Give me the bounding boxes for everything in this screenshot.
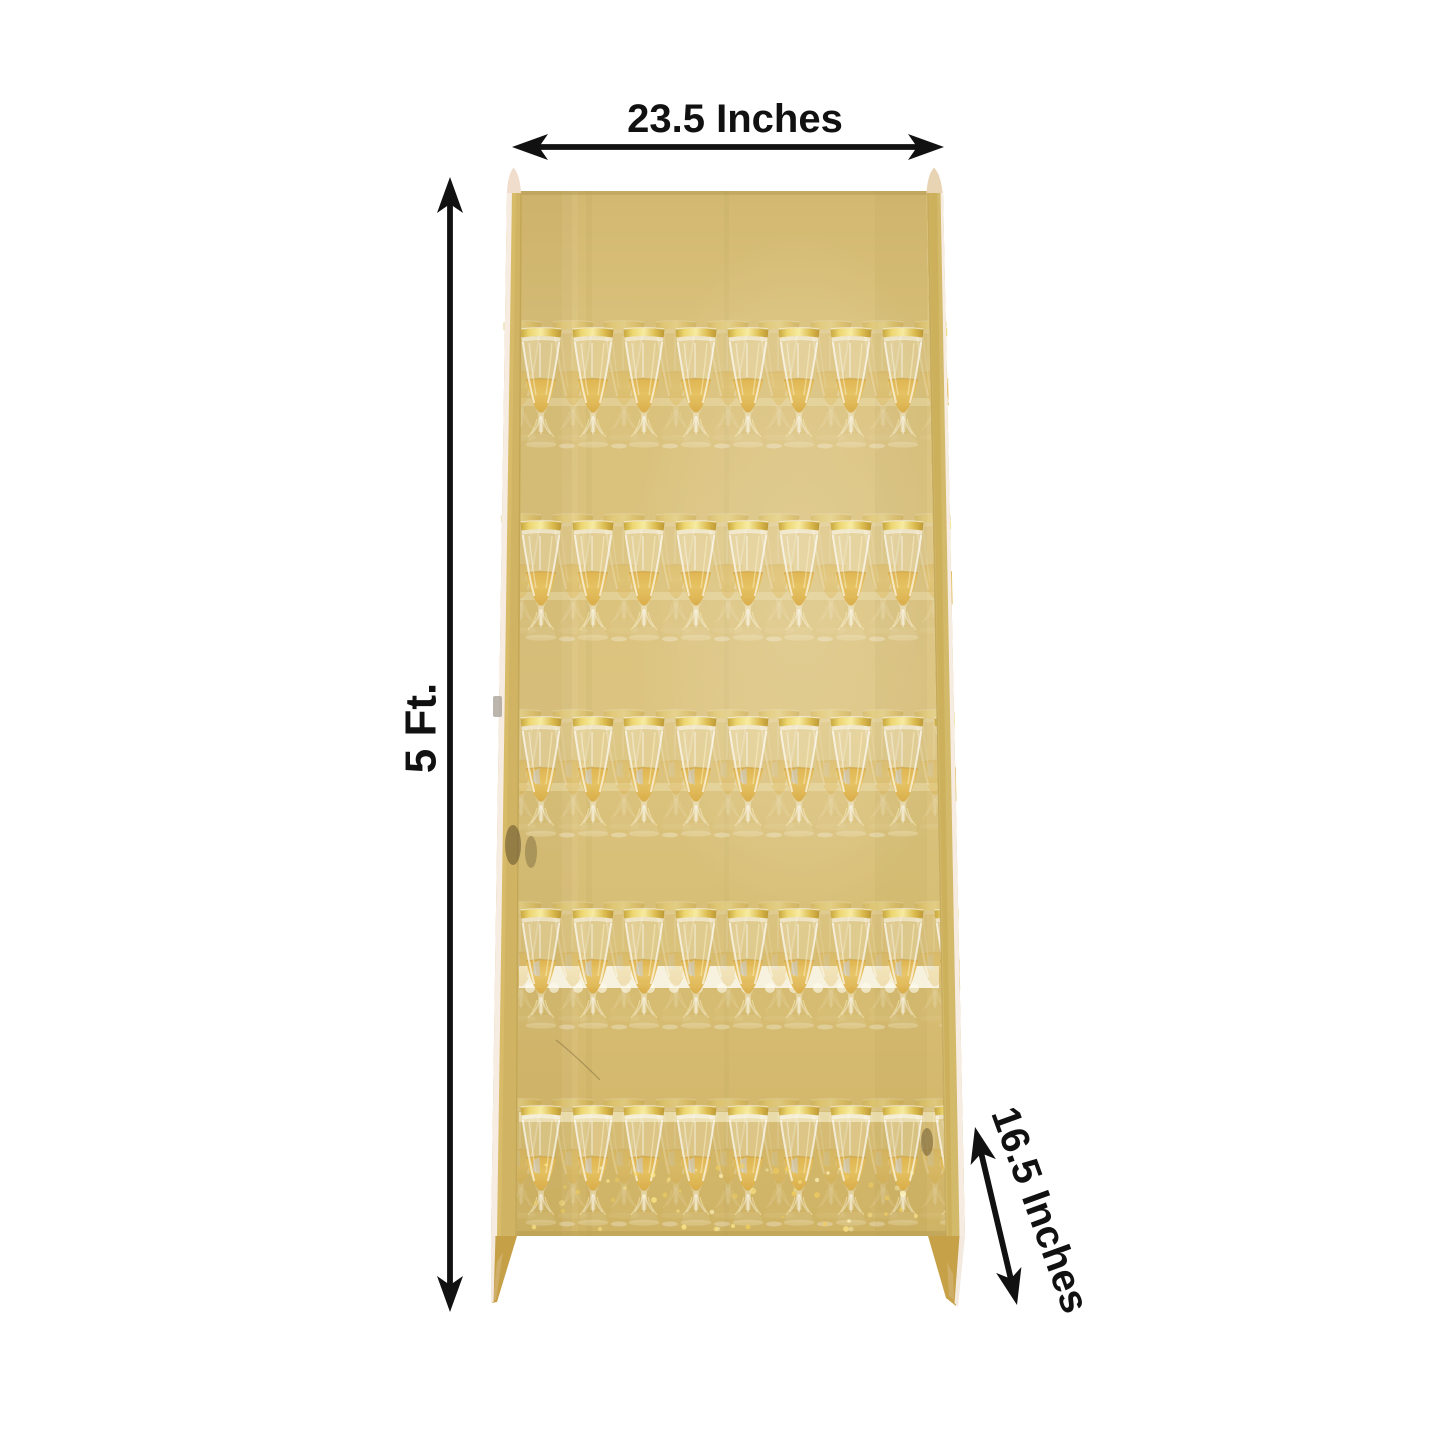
svg-text:5 Ft.: 5 Ft.: [397, 683, 446, 773]
svg-text:23.5 Inches: 23.5 Inches: [627, 97, 843, 141]
